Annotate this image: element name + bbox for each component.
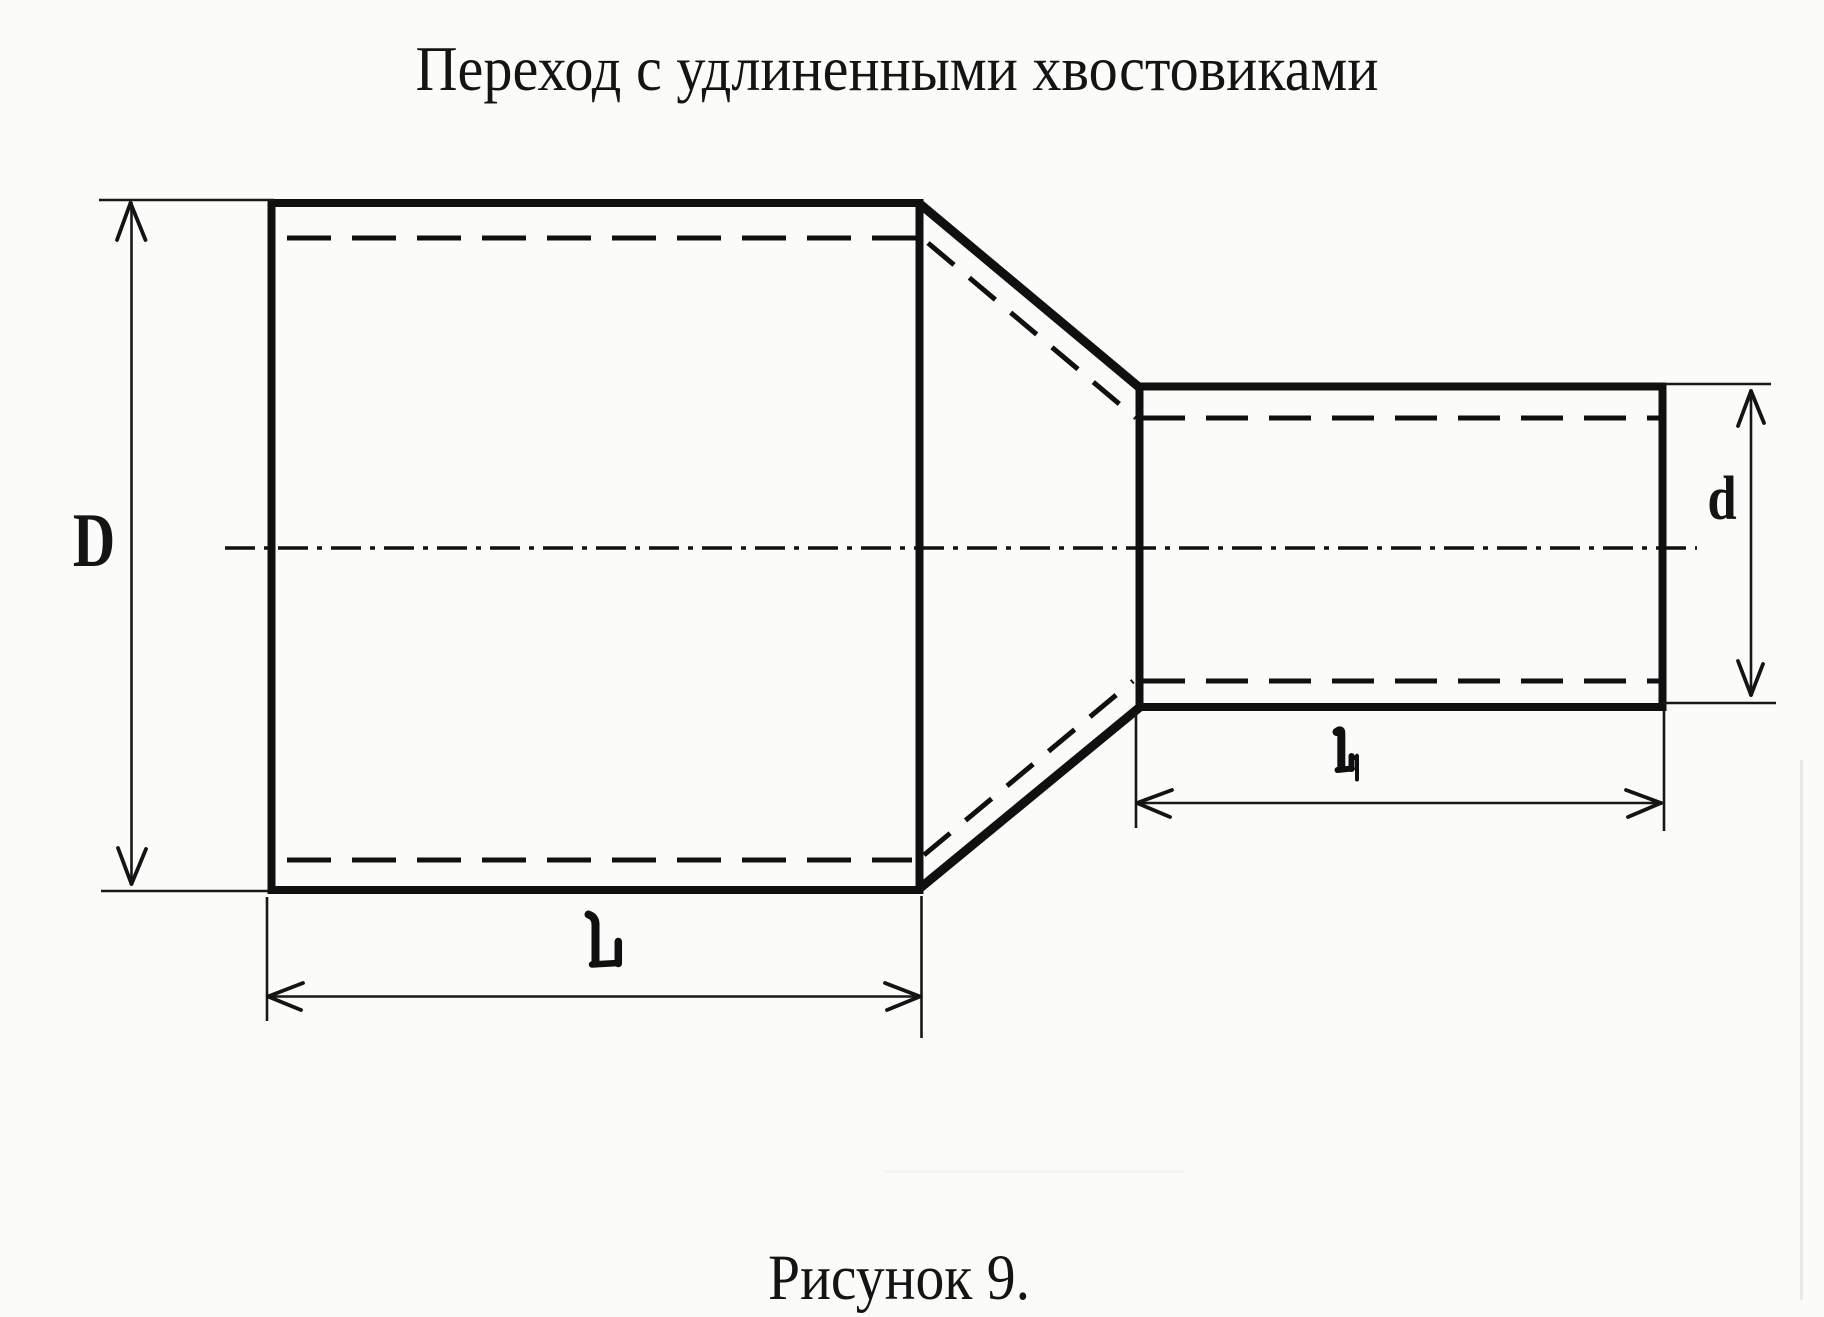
- svg-text:Рисунок 9.: Рисунок 9.: [768, 1242, 1030, 1314]
- svg-text:d: d: [1707, 465, 1736, 533]
- svg-text:Переход с удлиненными хвостови: Переход с удлиненными хвостовиками: [416, 33, 1379, 104]
- svg-text:D: D: [73, 497, 115, 583]
